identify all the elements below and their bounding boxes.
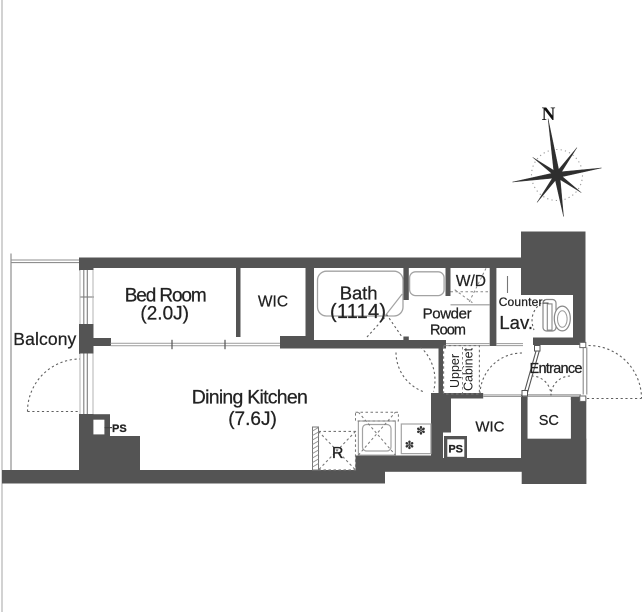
svg-text:Dining Kitchen: Dining Kitchen — [192, 387, 308, 409]
svg-text:Cabinet: Cabinet — [462, 347, 476, 391]
svg-text:PS: PS — [448, 443, 463, 455]
svg-text:Upper: Upper — [448, 354, 462, 388]
svg-text:Counter: Counter — [499, 295, 543, 309]
svg-text:Lav.: Lav. — [499, 312, 533, 333]
svg-text:(2.0J): (2.0J) — [140, 304, 189, 325]
svg-text:(1114): (1114) — [330, 301, 386, 323]
svg-text:Room: Room — [430, 323, 466, 339]
svg-text:N: N — [542, 104, 556, 125]
svg-text:Balcony: Balcony — [13, 329, 76, 349]
svg-text:✽: ✽ — [416, 426, 426, 438]
svg-text:✽: ✽ — [405, 440, 415, 452]
svg-text:PS: PS — [112, 423, 127, 435]
svg-text:R: R — [332, 445, 344, 462]
svg-text:(7.6J): (7.6J) — [228, 409, 277, 430]
svg-text:Powder: Powder — [423, 306, 472, 323]
svg-text:WIC: WIC — [258, 293, 288, 310]
svg-text:Entrance: Entrance — [530, 361, 583, 377]
svg-text:SC: SC — [539, 413, 559, 429]
svg-text:W/D: W/D — [456, 273, 486, 290]
svg-text:WIC: WIC — [475, 419, 504, 436]
